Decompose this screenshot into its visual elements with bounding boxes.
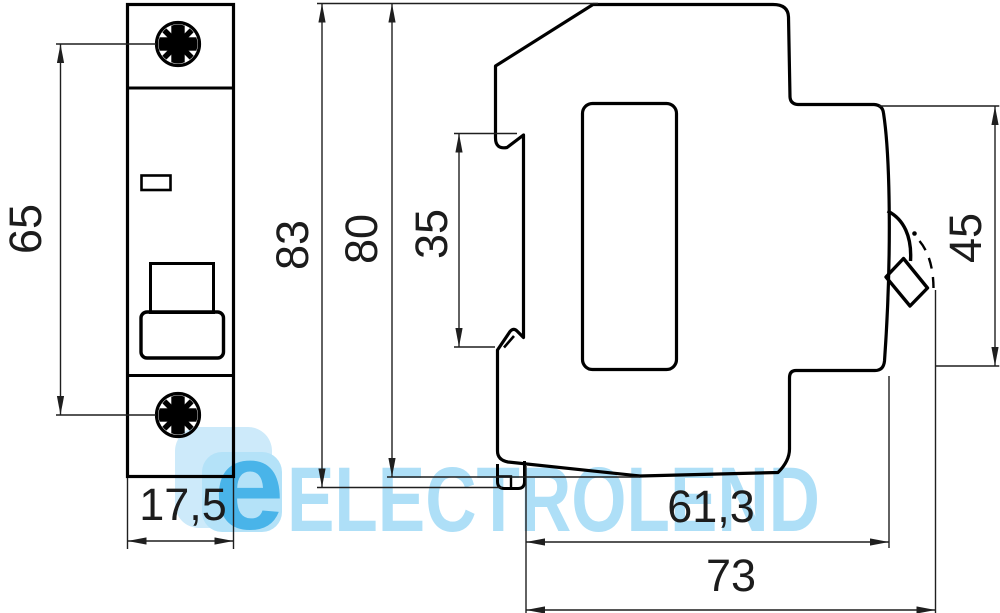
lever-swing-dot	[912, 231, 917, 236]
dim-17-5-label: 17,5	[139, 479, 227, 530]
side-view	[496, 5, 934, 489]
front-view	[128, 5, 234, 477]
breaker-side-outline	[496, 5, 890, 477]
dim-80-label: 80	[336, 214, 387, 264]
dim-35-label: 35	[406, 209, 457, 259]
screw-icon-top	[156, 22, 200, 66]
screw-icon-bottom	[156, 393, 200, 437]
dim-45-label: 45	[940, 213, 991, 263]
indicator-window	[142, 176, 171, 191]
toggle-switch-base	[141, 312, 224, 358]
dim-73-label: 73	[706, 550, 756, 601]
marking-panel	[583, 104, 677, 370]
dim-83-label: 83	[267, 220, 318, 270]
dimension-drawing-svg: e ELECTROLEND	[0, 0, 1000, 613]
toggle-switch-lever	[151, 264, 214, 313]
toggle-lever-tip	[886, 259, 928, 307]
drawing-canvas: e ELECTROLEND	[0, 0, 1000, 613]
dim-65-label: 65	[0, 204, 51, 254]
toggle-lever-arc	[888, 211, 911, 261]
dim-65	[56, 44, 156, 415]
dim-61-3-label: 61,3	[667, 481, 755, 532]
dim-35	[454, 134, 517, 348]
